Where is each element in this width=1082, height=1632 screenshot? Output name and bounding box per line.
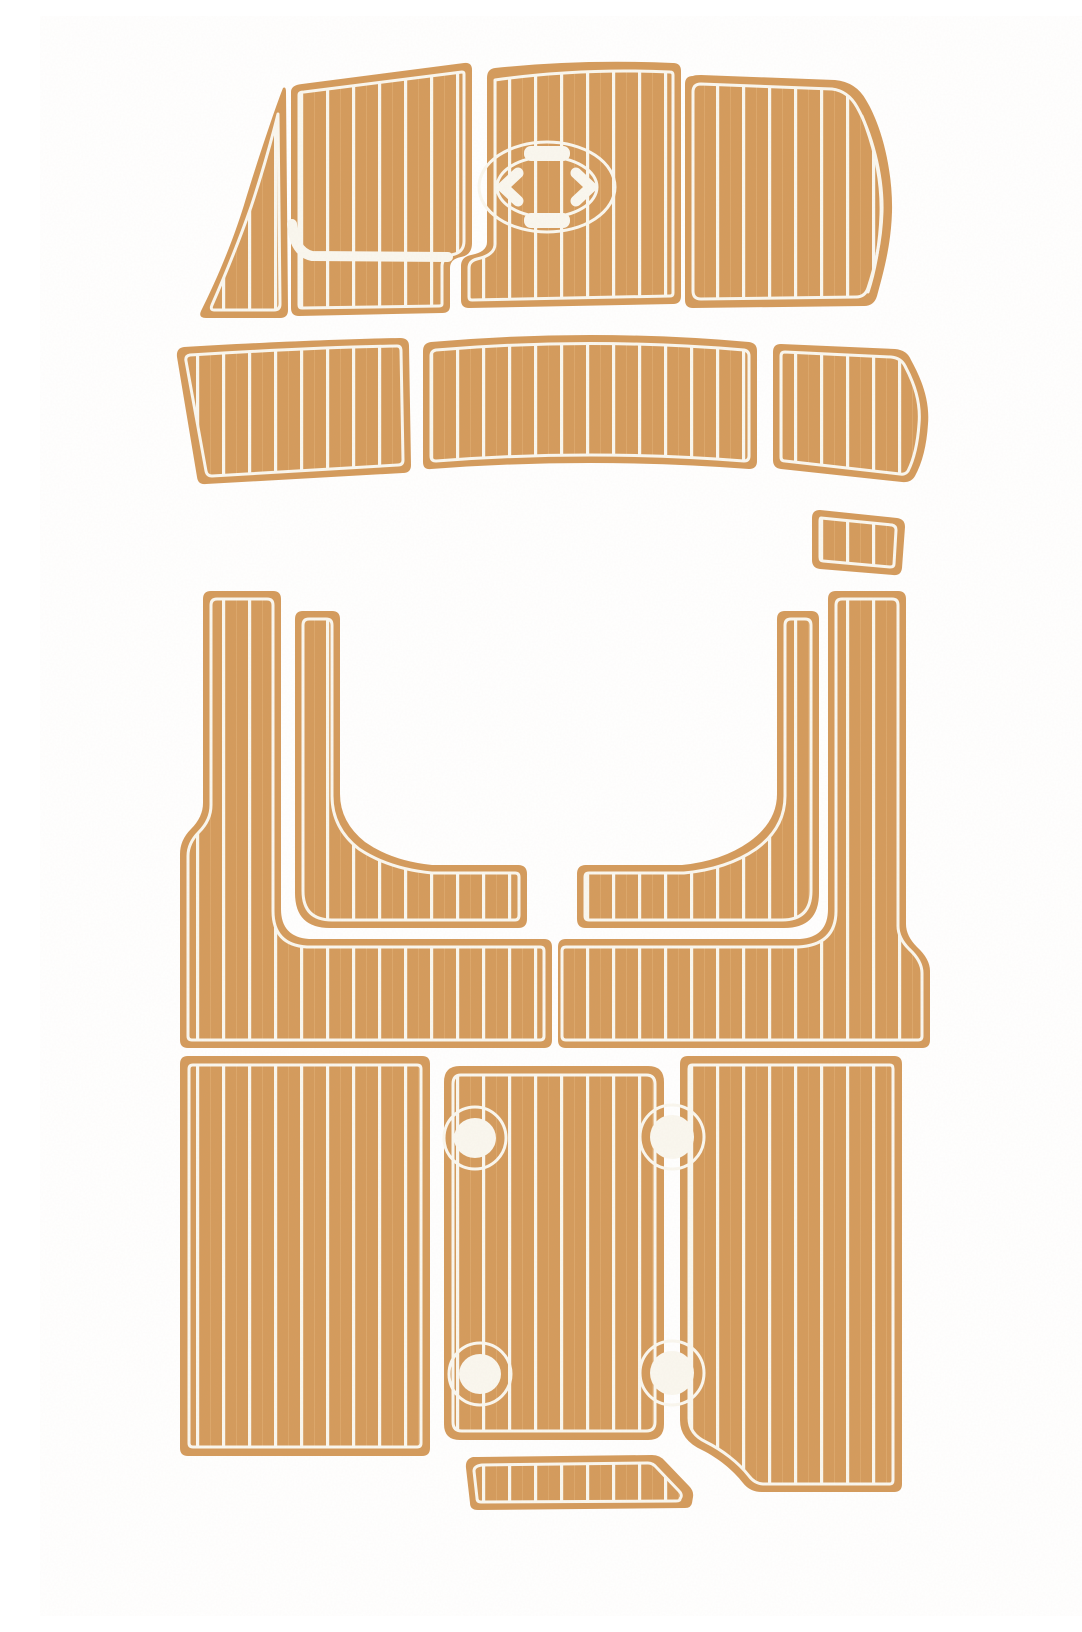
deck-pad-set-illustration — [40, 16, 1082, 1616]
photo-grain-overlay — [40, 16, 1082, 1616]
product-photo: EVA foam faux teak boat decking pad kit,… — [40, 16, 1082, 1616]
